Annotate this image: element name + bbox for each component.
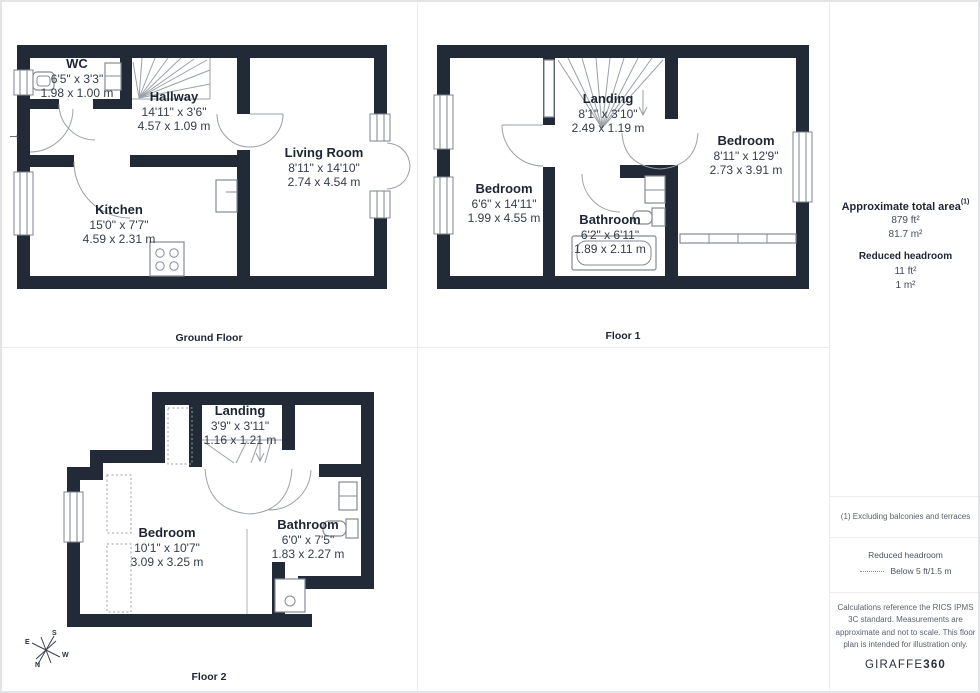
window [370, 191, 390, 218]
room-dim-imperial: 10'1" x 10'7" [131, 542, 204, 555]
room-dim-imperial: 8'11" x 12'9" [710, 150, 783, 163]
floor-label-ground: Ground Floor [175, 332, 242, 344]
legend-item: Below 5 ft/1.5 m [891, 566, 952, 576]
compass-north-label: N [35, 662, 40, 669]
room-dim-imperial: 15'0" x 7'7" [83, 219, 156, 232]
compass-west-label: W [62, 652, 69, 659]
room-label-bathroom-f2: Bathroom 6'0" x 7'5" 1.83 x 2.27 m [272, 518, 345, 561]
room-label-wc: WC 6'5" x 3'3" 1.98 x 1.00 m [41, 57, 114, 100]
room-name: Bathroom [272, 518, 345, 533]
room-name: Landing [572, 92, 645, 107]
legend-title: Reduced headroom [829, 550, 980, 560]
room-dim-imperial: 6'0" x 7'5" [272, 534, 345, 547]
room-dim-imperial: 6'2" x 6'11" [574, 229, 646, 242]
info-sidebar: Approximate total area(1) 879 ft² 81.7 m… [829, 2, 980, 693]
reduced-headroom-zones [107, 408, 192, 612]
room-dim-metric: 2.49 x 1.19 m [572, 122, 645, 135]
room-name: Hallway [138, 90, 211, 105]
room-name: Living Room [285, 146, 364, 161]
wardrobe-icon [680, 234, 796, 243]
french-door-arcs [387, 143, 410, 189]
room-dim-metric: 4.57 x 1.09 m [138, 120, 211, 133]
brand-name: GIRAFFE [865, 659, 923, 671]
stove-icon [150, 242, 184, 276]
shower-icon [275, 579, 305, 612]
room-label-kitchen: Kitchen 15'0" x 7'7" 4.59 x 2.31 m [83, 203, 156, 246]
room-name: Bedroom [131, 526, 204, 541]
room-dim-imperial: 6'5" x 3'3" [41, 73, 114, 86]
room-label-landing-f1: Landing 8'1" x 3'10" 2.49 x 1.19 m [572, 92, 645, 135]
footnote-marker: (1) [961, 199, 970, 206]
room-dim-metric: 1.83 x 2.27 m [272, 548, 345, 561]
reduced-headroom-imperial: 11 ft² [829, 266, 980, 277]
room-name: Bedroom [468, 182, 541, 197]
room-label-bedroom-right: Bedroom 8'11" x 12'9" 2.73 x 3.91 m [710, 134, 783, 177]
room-label-landing-f2: Landing 3'9" x 3'11" 1.16 x 1.21 m [204, 404, 277, 447]
floor-label-2: Floor 2 [191, 671, 226, 683]
room-dim-imperial: 6'6" x 14'11" [468, 198, 541, 211]
room-dim-imperial: 14'11" x 3'6" [138, 106, 211, 119]
room-dim-metric: 1.99 x 4.55 m [468, 212, 541, 225]
reduced-headroom-metric: 1 m² [829, 280, 980, 291]
reduced-headroom-title: Reduced headroom [829, 251, 980, 262]
room-label-hallway: Hallway 14'11" x 3'6" 4.57 x 1.09 m [138, 90, 211, 133]
compass-east-label: E [25, 639, 30, 646]
fridge-icon [216, 180, 237, 212]
floorplan-page: → WC 6'5" x 3'3" 1.98 x 1.00 m Hallway 1… [0, 0, 980, 693]
door-arcs [205, 469, 311, 514]
giraffe360-logo: GIRAFFE360 [829, 659, 980, 671]
radiator-icon [544, 60, 554, 117]
room-dim-metric: 1.16 x 1.21 m [204, 434, 277, 447]
room-dim-metric: 3.09 x 3.25 m [131, 556, 204, 569]
room-label-bedroom-left: Bedroom 6'6" x 14'11" 1.99 x 4.55 m [468, 182, 541, 225]
window [793, 132, 812, 202]
total-area-imperial: 879 ft² [829, 215, 980, 226]
window [434, 177, 453, 234]
room-label-living-room: Living Room 8'11" x 14'10" 2.74 x 4.54 m [285, 146, 364, 189]
legend-row: Below 5 ft/1.5 m [829, 566, 980, 576]
compass-south-label: S [52, 630, 57, 637]
floor-label-1: Floor 1 [605, 330, 640, 342]
room-dim-imperial: 8'1" x 3'10" [572, 108, 645, 121]
compass-icon [32, 636, 60, 664]
dotted-line-icon [860, 571, 884, 573]
total-area-metric: 81.7 m² [829, 229, 980, 240]
room-name: Bathroom [574, 213, 646, 228]
room-name: Bedroom [710, 134, 783, 149]
room-dim-metric: 2.73 x 3.91 m [710, 164, 783, 177]
room-dim-metric: 2.74 x 4.54 m [285, 176, 364, 189]
brand-suffix: 360 [923, 659, 946, 671]
room-name: Landing [204, 404, 277, 419]
room-dim-metric: 1.98 x 1.00 m [41, 87, 114, 100]
window [14, 70, 33, 95]
window [64, 492, 83, 542]
window [434, 95, 453, 149]
room-dim-imperial: 3'9" x 3'11" [204, 420, 277, 433]
total-area-title: Approximate total area(1) [829, 197, 980, 215]
entrance-arrow-icon: → [7, 126, 22, 143]
room-dim-imperial: 8'11" x 14'10" [285, 162, 364, 175]
bathroom-cabinet-icon [645, 176, 665, 203]
disclaimer-text: Calculations reference the RICS IPMS 3C … [835, 602, 976, 652]
room-dim-metric: 4.59 x 2.31 m [83, 233, 156, 246]
room-name: Kitchen [83, 203, 156, 218]
window [370, 114, 390, 141]
area-footnote: (1) Excluding balconies and terraces [829, 512, 980, 521]
room-label-bedroom-f2: Bedroom 10'1" x 10'7" 3.09 x 3.25 m [131, 526, 204, 569]
room-label-bathroom-f1: Bathroom 6'2" x 6'11" 1.89 x 2.11 m [574, 213, 646, 256]
sink-icon [339, 482, 357, 510]
room-name: WC [41, 57, 114, 72]
window [14, 172, 33, 235]
room-dim-metric: 1.89 x 2.11 m [574, 243, 646, 256]
